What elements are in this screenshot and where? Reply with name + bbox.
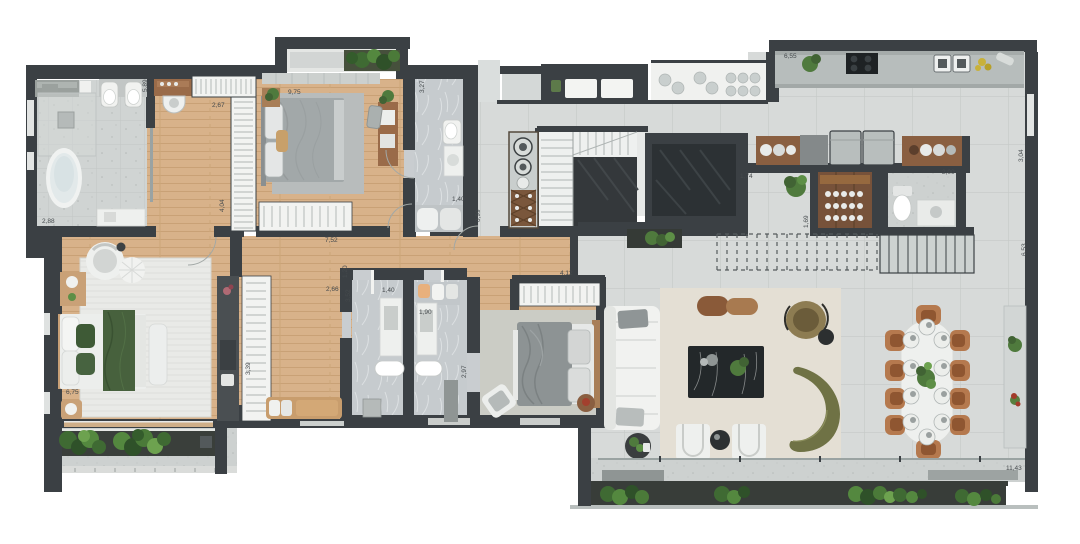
svg-text:1,90: 1,90 [419,309,432,316]
svg-text:2,66: 2,66 [326,286,339,293]
svg-text:6,53: 6,53 [1021,243,1028,256]
svg-text:1,40: 1,40 [452,196,465,203]
svg-text:3,52: 3,52 [345,289,352,302]
svg-text:1,74: 1,74 [740,173,753,180]
svg-text:3,27: 3,27 [419,80,426,93]
svg-text:6,55: 6,55 [784,53,797,60]
svg-text:5,89: 5,89 [142,79,149,92]
svg-text:3,39: 3,39 [245,362,252,375]
svg-text:0,99: 0,99 [475,209,482,222]
svg-text:2,00: 2,00 [942,169,955,176]
svg-text:1,69: 1,69 [803,215,810,228]
svg-text:6,75: 6,75 [66,389,79,396]
svg-text:2,67: 2,67 [212,102,225,109]
svg-text:9,75: 9,75 [288,89,301,96]
svg-text:7,52: 7,52 [325,237,338,244]
svg-text:2,97: 2,97 [461,365,468,378]
svg-text:11,43: 11,43 [1006,465,1022,472]
svg-text:4,04: 4,04 [219,199,226,212]
svg-text:1,20: 1,20 [342,265,349,278]
svg-text:2,88: 2,88 [42,218,55,225]
svg-text:3,04: 3,04 [1018,149,1025,162]
svg-text:4,12: 4,12 [560,270,573,277]
svg-text:1,40: 1,40 [382,287,395,294]
